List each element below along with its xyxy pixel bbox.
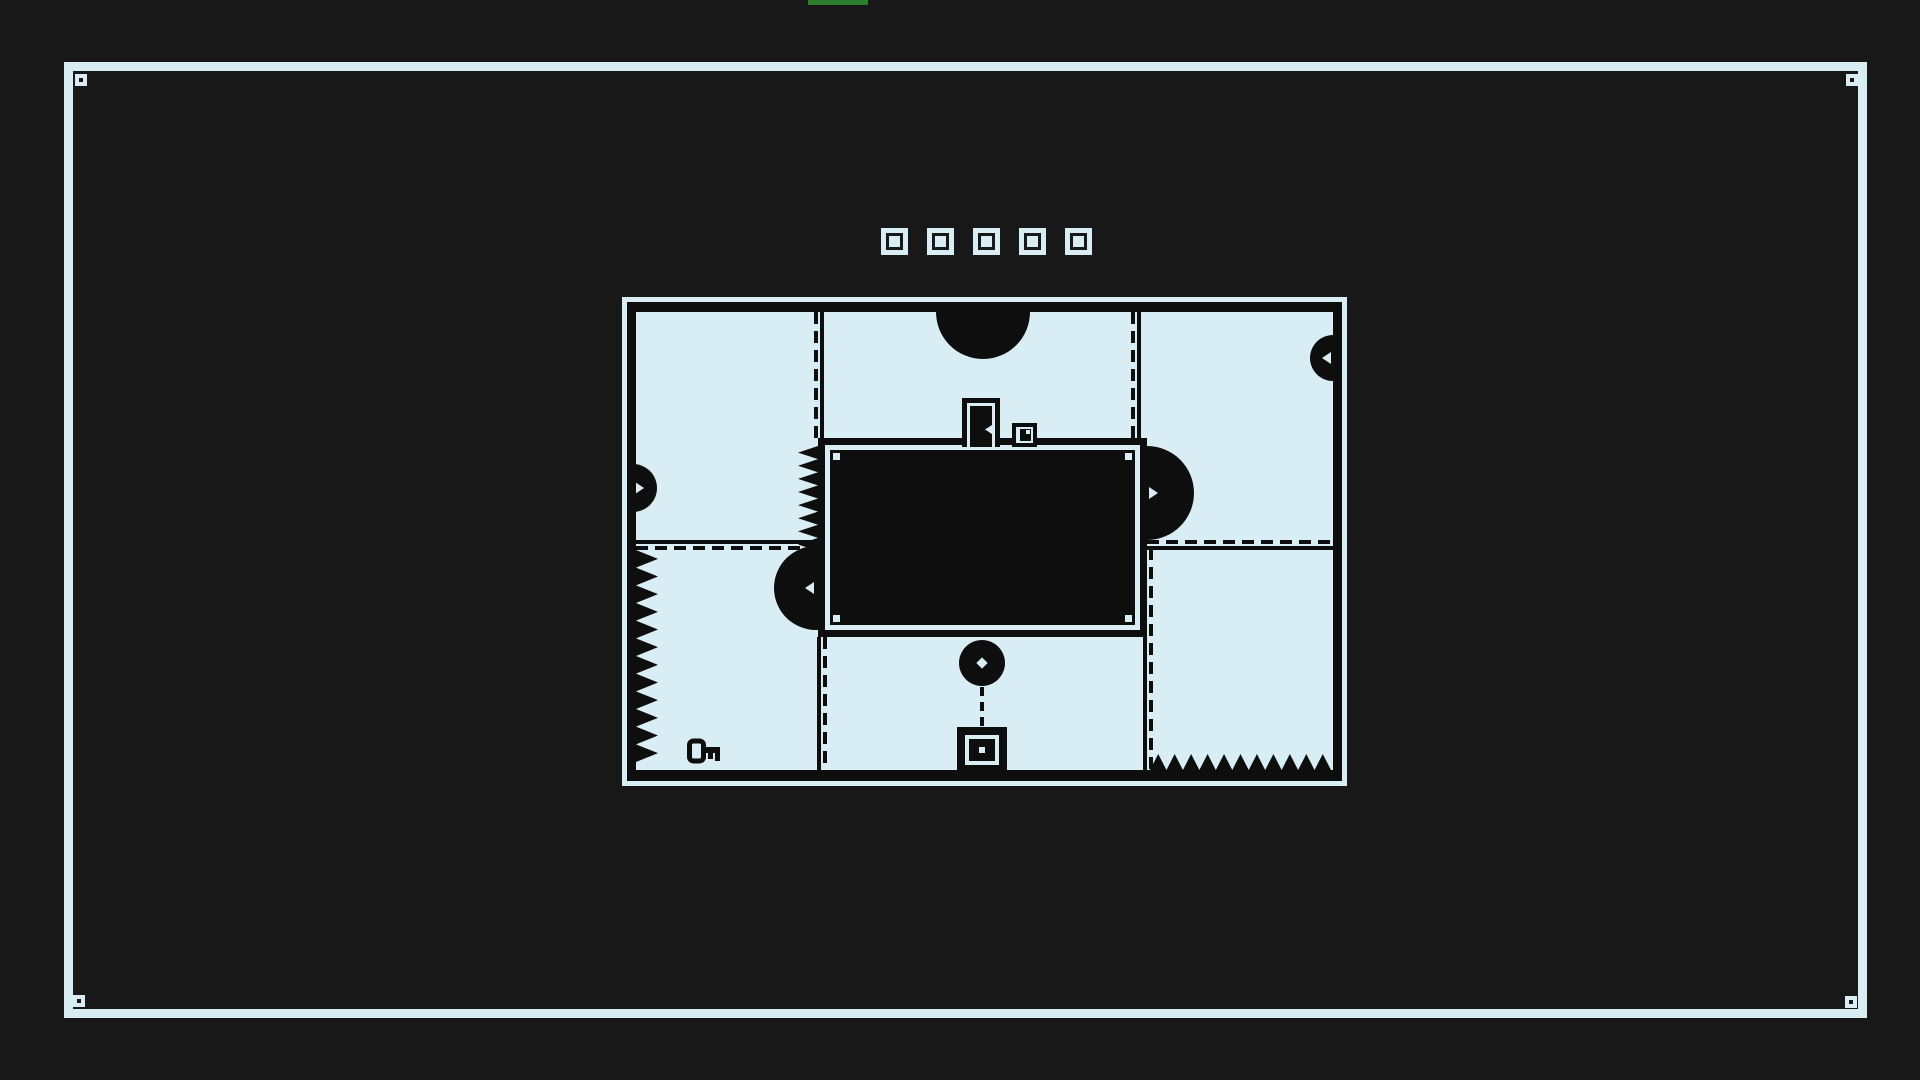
- room-divider: [814, 312, 824, 438]
- map-interior: [636, 312, 1333, 770]
- spike-strip: [636, 550, 658, 762]
- level-indicator-fill: [935, 236, 946, 247]
- divider-solid-line: [820, 312, 824, 438]
- frame-corner-marker: [1846, 74, 1858, 86]
- divider-dash-line: [823, 637, 827, 770]
- room-divider: [817, 637, 827, 770]
- door-frame-gap: [967, 403, 995, 447]
- game-screen: [0, 0, 1920, 1080]
- block-corner-marker: [1125, 453, 1132, 460]
- door-panel: [970, 406, 992, 447]
- divider-dash-line: [1131, 312, 1135, 438]
- central-block: [818, 438, 1147, 637]
- divider-solid-line: [1147, 546, 1333, 550]
- divider-dash-line: [636, 546, 818, 550]
- divider-solid-line: [817, 637, 821, 770]
- block-corner-marker: [833, 453, 840, 460]
- level-indicator-fill: [1027, 236, 1038, 247]
- saw-blade: [1310, 335, 1333, 381]
- goal-socket-core: [969, 739, 995, 761]
- crate-glyph: [1020, 429, 1031, 441]
- goal-socket-dot: [979, 747, 985, 753]
- exit-door: [962, 398, 1000, 447]
- dashed-connector: [980, 687, 984, 727]
- central-block-outline: [825, 445, 1140, 630]
- block-corner-marker: [833, 615, 840, 622]
- key-icon: [686, 738, 724, 764]
- divider-solid-line: [1137, 312, 1141, 438]
- door-handle-icon: [985, 425, 992, 434]
- level-indicator[interactable]: [1019, 228, 1046, 255]
- divider-solid-line: [636, 540, 818, 544]
- progress-bar: [808, 0, 868, 5]
- level-indicator[interactable]: [973, 228, 1000, 255]
- divider-dash-line: [1149, 548, 1153, 770]
- frame-corner-marker: [1845, 996, 1857, 1008]
- level-indicators: [881, 228, 1092, 255]
- goal-socket: [957, 727, 1007, 770]
- level-indicator[interactable]: [1065, 228, 1092, 255]
- room-divider: [1131, 312, 1141, 438]
- saw-pivot-notch: [976, 657, 987, 668]
- crate: [1012, 423, 1037, 447]
- room-divider: [1147, 540, 1333, 550]
- crate-glyph-dot: [1026, 430, 1030, 434]
- frame-corner-marker: [75, 74, 87, 86]
- level-indicator[interactable]: [927, 228, 954, 255]
- saw-blade: [636, 464, 657, 512]
- level-indicator-fill: [889, 236, 900, 247]
- saw-blade: [936, 312, 1030, 359]
- frame-corner-marker: [73, 995, 85, 1007]
- level-indicator-fill: [1073, 236, 1084, 247]
- block-corner-marker: [1125, 615, 1132, 622]
- map-walls: [627, 302, 1342, 781]
- divider-dash-line: [1147, 540, 1333, 544]
- saw-pivot-notch: [636, 482, 644, 494]
- spike-strip: [1150, 754, 1331, 770]
- saw-blade: [959, 640, 1005, 686]
- saw-pivot-notch: [805, 582, 814, 594]
- level-indicator-fill: [981, 236, 992, 247]
- room-divider: [636, 540, 818, 550]
- saw-pivot-notch: [1149, 487, 1158, 499]
- spike-strip: [798, 446, 818, 551]
- world-map[interactable]: [622, 297, 1347, 786]
- goal-socket-ring: [965, 735, 999, 765]
- level-indicator[interactable]: [881, 228, 908, 255]
- divider-dash-line: [814, 312, 818, 438]
- saw-pivot-notch: [1322, 352, 1331, 364]
